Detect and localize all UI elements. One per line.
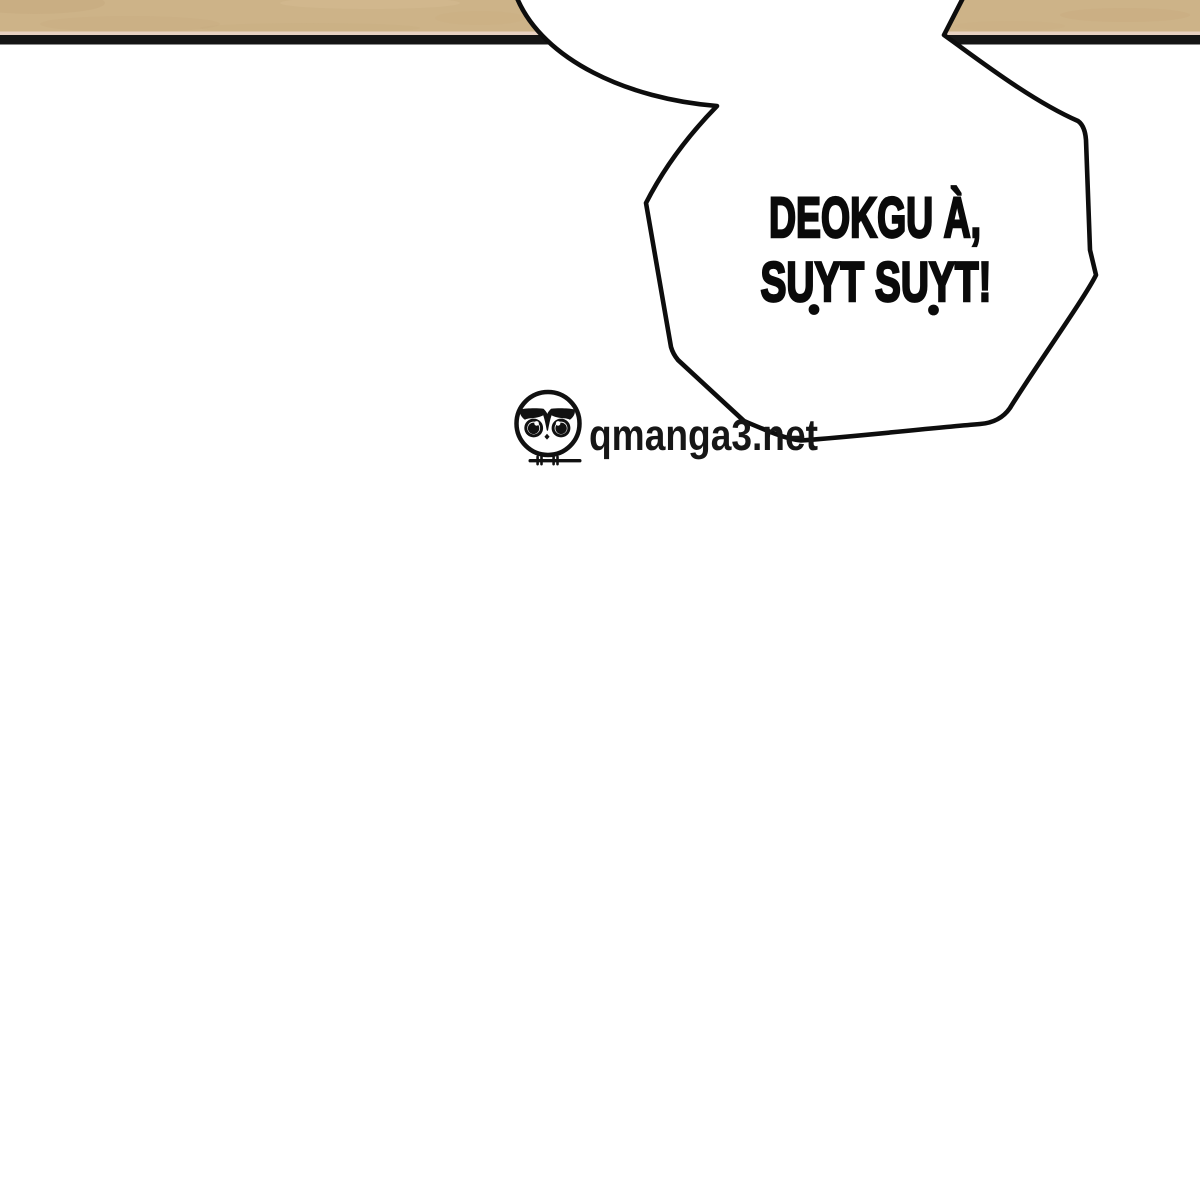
- svg-text:SUYT SUYT!: SUYT SUYT!: [761, 250, 992, 313]
- svg-text:qmanga3.net: qmanga3.net: [589, 411, 818, 460]
- svg-text:DEOKGU À,: DEOKGU À,: [769, 186, 981, 250]
